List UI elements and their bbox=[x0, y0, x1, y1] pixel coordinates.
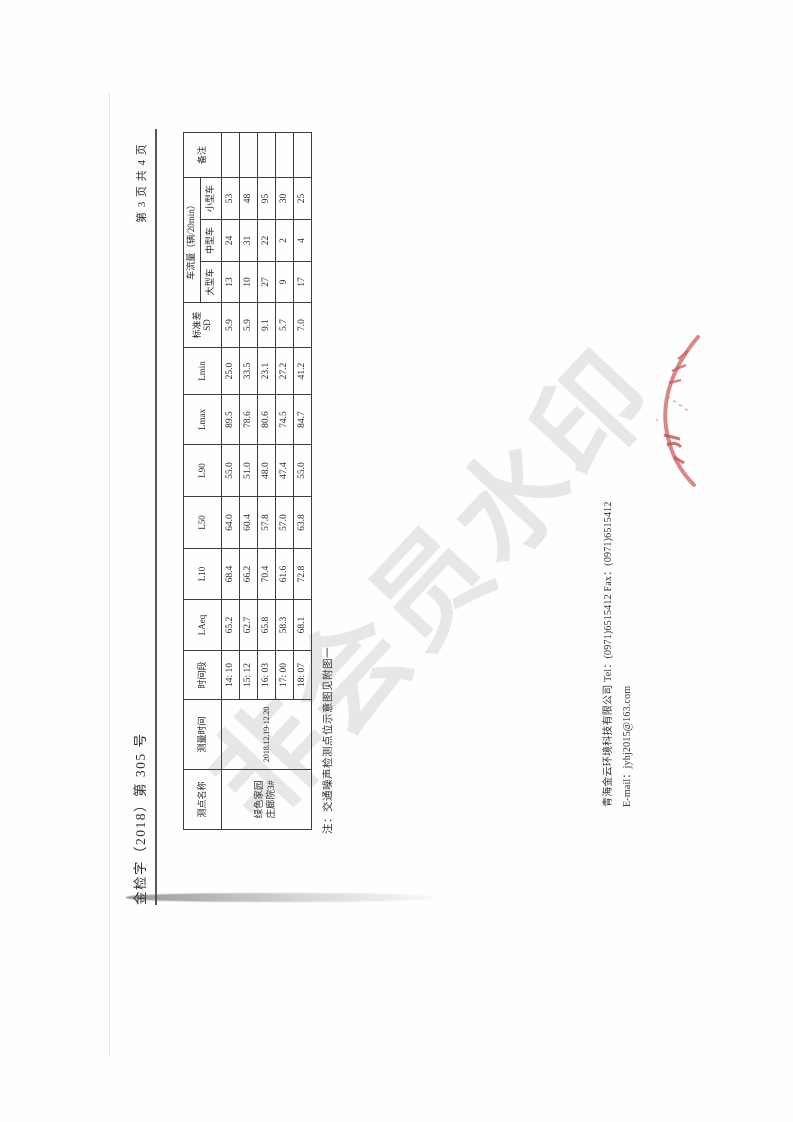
header-vehicle-large: 大型车 bbox=[201, 262, 222, 303]
header-traffic-volume-group: 车流量（辆/20min） bbox=[184, 177, 201, 302]
cell-small: 30 bbox=[276, 177, 294, 219]
cell-l10: 66.2 bbox=[240, 549, 258, 600]
cell-l10: 72.8 bbox=[294, 549, 312, 600]
cell-lmax: 80.6 bbox=[258, 395, 276, 445]
header-remark: 备注 bbox=[184, 132, 222, 177]
noise-table-container: 测点名称 测量时间 时间段 LAeq L10 L50 L90 Lmax Lmin… bbox=[183, 132, 312, 830]
cell-lmin: 25.0 bbox=[222, 348, 240, 395]
doc-ref-number: 金检字（2018）第 305 号 bbox=[129, 733, 149, 906]
cell-lmin: 27.2 bbox=[276, 348, 294, 395]
header-measure-time: 测量时间 bbox=[184, 700, 222, 770]
cell-remark bbox=[276, 132, 294, 177]
cell-l50: 57.0 bbox=[276, 497, 294, 549]
cell-l50: 60.4 bbox=[240, 497, 258, 549]
cell-l90: 48.0 bbox=[258, 445, 276, 497]
header-l50: L50 bbox=[184, 497, 222, 549]
header-point-name: 测点名称 bbox=[184, 770, 222, 830]
cell-medium: 31 bbox=[240, 220, 258, 262]
cell-l90: 47.4 bbox=[276, 445, 294, 497]
header-lmin: Lmin bbox=[184, 348, 222, 395]
cell-small: 53 bbox=[222, 177, 240, 219]
cell-l90: 55.0 bbox=[222, 445, 240, 497]
table-row: 绿色家园 庄廊院3# 2018.12.19-12.20 14: 10 65.2 … bbox=[222, 132, 240, 829]
header-l90: L90 bbox=[184, 445, 222, 497]
cell-small: 48 bbox=[240, 177, 258, 219]
cell-medium: 2 bbox=[276, 220, 294, 262]
cell-large: 10 bbox=[240, 262, 258, 303]
cell-lmax: 78.6 bbox=[240, 395, 258, 445]
header-standard-deviation: 标准差 SD bbox=[184, 303, 222, 348]
red-seal-icon bbox=[644, 331, 704, 489]
cell-l50: 64.0 bbox=[222, 497, 240, 549]
cell-l50: 63.8 bbox=[294, 497, 312, 549]
cell-small: 25 bbox=[294, 177, 312, 219]
header-rule bbox=[155, 129, 157, 905]
cell-period: 16: 03 bbox=[258, 651, 276, 700]
cell-large: 27 bbox=[258, 262, 276, 303]
cell-lmax: 84.7 bbox=[294, 395, 312, 445]
cell-laeq: 68.1 bbox=[294, 600, 312, 651]
cell-medium: 22 bbox=[258, 220, 276, 262]
cell-lmax: 89.5 bbox=[222, 395, 240, 445]
cell-lmin: 33.5 bbox=[240, 348, 258, 395]
cell-remark bbox=[294, 132, 312, 177]
cell-l90: 55.0 bbox=[294, 445, 312, 497]
header-lmax: Lmax bbox=[184, 395, 222, 445]
point-name-line1: 绿色家园 bbox=[255, 770, 267, 829]
cell-l90: 51.0 bbox=[240, 445, 258, 497]
cell-l50: 57.8 bbox=[258, 497, 276, 549]
paper-edge-shadow bbox=[126, 893, 434, 902]
cell-measure-time: 2018.12.19-12.20 bbox=[222, 700, 312, 770]
header-laeq: LAeq bbox=[184, 600, 222, 651]
header-sd-en: SD bbox=[203, 303, 213, 347]
cell-period: 18: 07 bbox=[294, 651, 312, 700]
cell-point-name: 绿色家园 庄廊院3# bbox=[222, 770, 312, 830]
cell-laeq: 65.8 bbox=[258, 600, 276, 651]
cell-lmin: 41.2 bbox=[294, 348, 312, 395]
footer-company-line: 青海金云环境科技有限公司 Tel：(0971)6515412 Fax：(0971… bbox=[599, 501, 614, 807]
header-vehicle-small: 小型车 bbox=[201, 177, 222, 219]
cell-sd: 5.9 bbox=[222, 303, 240, 348]
cell-remark bbox=[258, 132, 276, 177]
cell-sd: 9.1 bbox=[258, 303, 276, 348]
note-line: 注：交通噪声检测点位示意图见附图一 bbox=[320, 647, 335, 834]
header-time-period: 时间段 bbox=[184, 651, 222, 700]
cell-laeq: 58.3 bbox=[276, 600, 294, 651]
header-vehicle-medium: 中型车 bbox=[201, 220, 222, 262]
rotated-document-content: 金检字（2018）第 305 号 第 3 页 共 4 页 测点名称 测量时间 时… bbox=[0, 0, 793, 1122]
cell-sd: 5.9 bbox=[240, 303, 258, 348]
traffic-noise-table: 测点名称 测量时间 时间段 LAeq L10 L50 L90 Lmax Lmin… bbox=[183, 132, 312, 830]
cell-large: 9 bbox=[276, 262, 294, 303]
cell-laeq: 62.7 bbox=[240, 600, 258, 651]
cell-l10: 61.6 bbox=[276, 549, 294, 600]
cell-period: 17: 00 bbox=[276, 651, 294, 700]
cell-medium: 4 bbox=[294, 220, 312, 262]
cell-lmin: 23.1 bbox=[258, 348, 276, 395]
cell-l10: 68.4 bbox=[222, 549, 240, 600]
cell-remark bbox=[222, 132, 240, 177]
cell-lmax: 74.5 bbox=[276, 395, 294, 445]
cell-large: 13 bbox=[222, 262, 240, 303]
cell-medium: 24 bbox=[222, 220, 240, 262]
cell-sd: 7.0 bbox=[294, 303, 312, 348]
cell-period: 15: 12 bbox=[240, 651, 258, 700]
cell-sd: 5.7 bbox=[276, 303, 294, 348]
cell-l10: 70.4 bbox=[258, 549, 276, 600]
cell-remark bbox=[240, 132, 258, 177]
cell-small: 95 bbox=[258, 177, 276, 219]
cell-large: 17 bbox=[294, 262, 312, 303]
cell-period: 14: 10 bbox=[222, 651, 240, 700]
cell-laeq: 65.2 bbox=[222, 600, 240, 651]
footer-email-line: E-mail：jyhj2015@163.com bbox=[618, 686, 633, 807]
scanned-report-page: { "document": { "ref_number": "金检字（2018）… bbox=[0, 0, 793, 1122]
page-indicator: 第 3 页 共 4 页 bbox=[133, 143, 149, 223]
point-name-line2: 庄廊院3# bbox=[267, 770, 279, 829]
header-l10: L10 bbox=[184, 549, 222, 600]
